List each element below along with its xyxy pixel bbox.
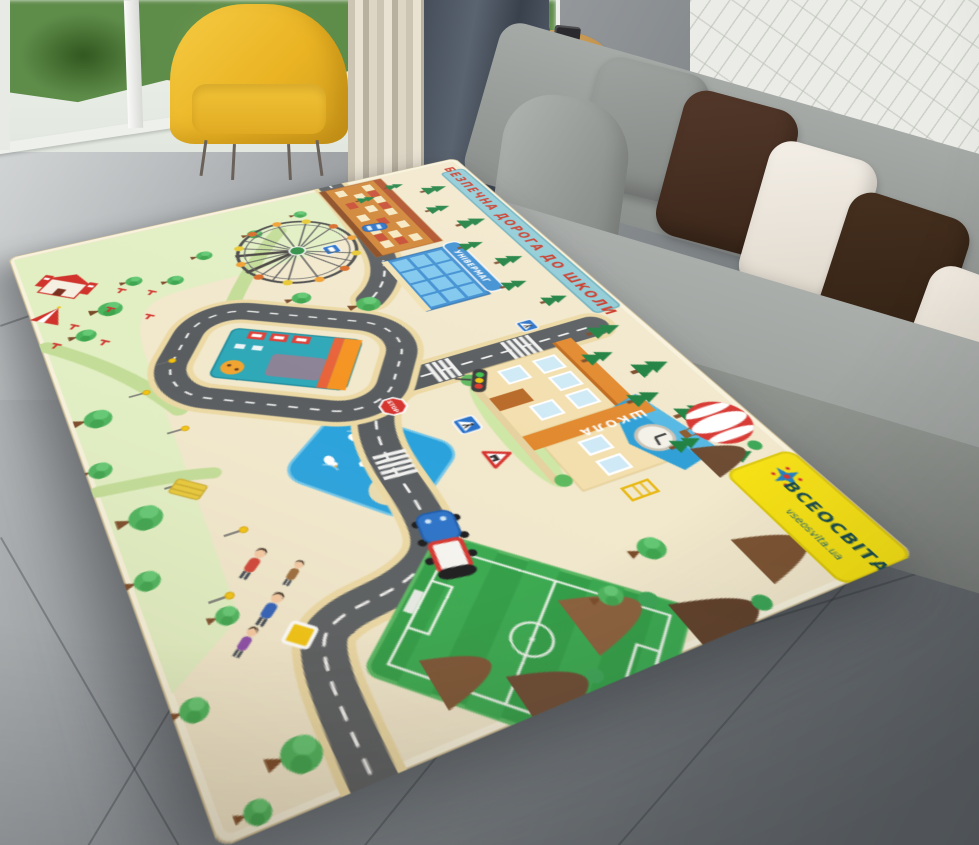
armchair-leg <box>231 144 236 180</box>
living-room-scene: ШКОЛА УНІВЕРМАГ <box>0 0 979 845</box>
armchair-leg <box>200 140 208 176</box>
armchair-leg <box>316 140 324 176</box>
armchair-leg <box>287 144 292 180</box>
goal <box>651 666 669 695</box>
armchair-seat <box>192 84 326 134</box>
window-post <box>0 0 10 150</box>
armchair <box>170 4 352 180</box>
